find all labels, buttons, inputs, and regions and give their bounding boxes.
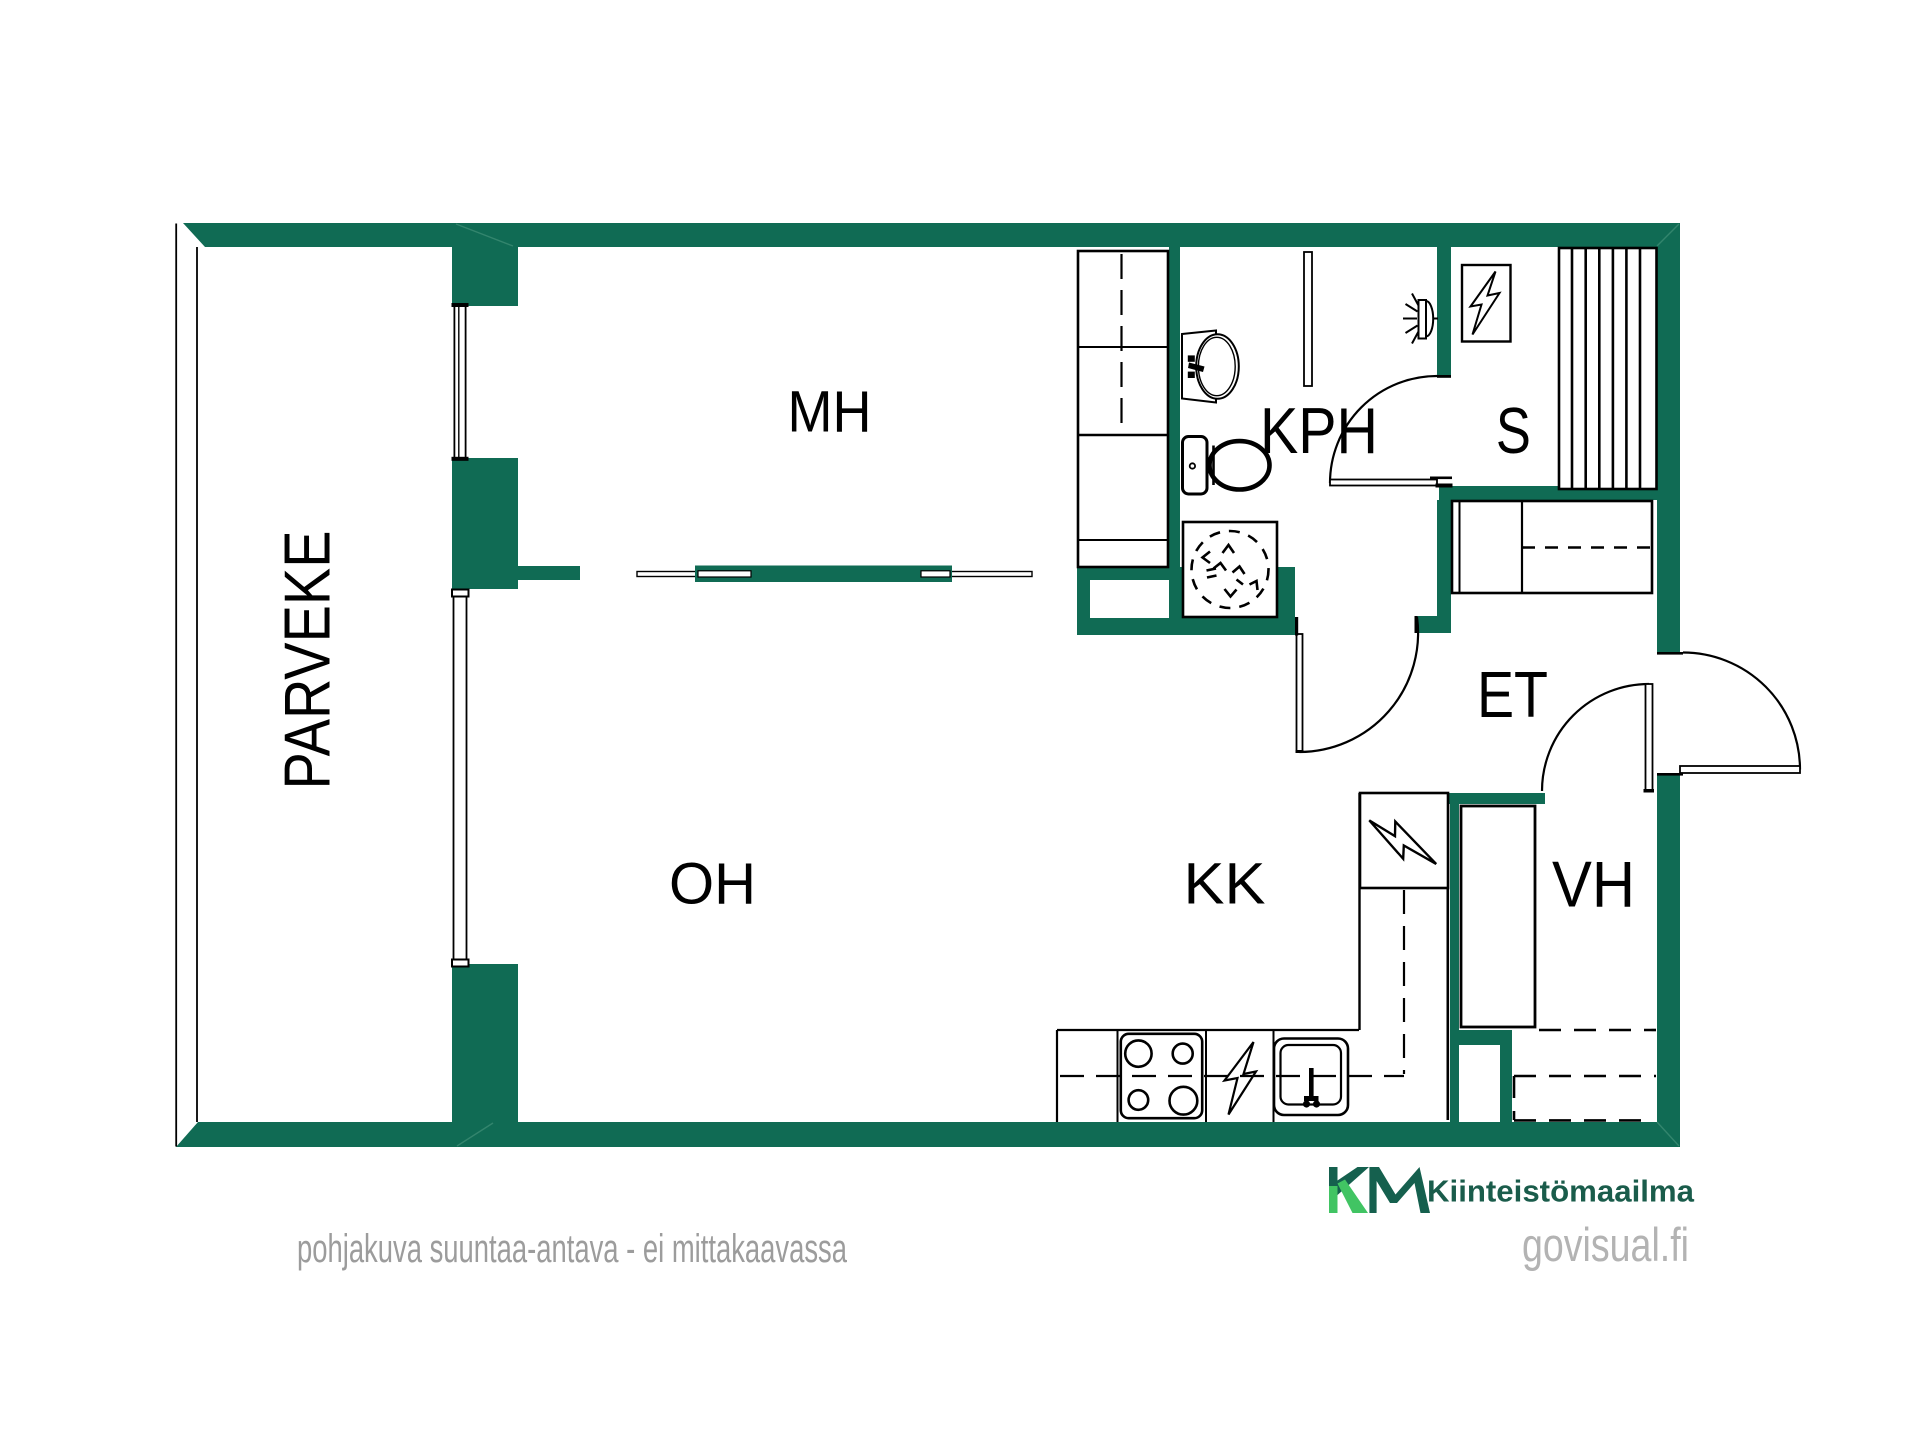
svg-text:PARVEKE: PARVEKE bbox=[271, 531, 344, 790]
svg-text:ET: ET bbox=[1477, 658, 1548, 731]
svg-text:VH: VH bbox=[1552, 848, 1635, 921]
svg-text:MH: MH bbox=[788, 380, 872, 445]
svg-text:Kiinteistömaailma: Kiinteistömaailma bbox=[1427, 1174, 1695, 1209]
svg-text:pohjakuva suuntaa-antava - ei: pohjakuva suuntaa-antava - ei mittakaava… bbox=[297, 1227, 848, 1271]
svg-text:OH: OH bbox=[669, 852, 756, 917]
svg-text:KK: KK bbox=[1184, 852, 1266, 917]
svg-text:govisual.fi: govisual.fi bbox=[1522, 1218, 1689, 1271]
svg-text:S: S bbox=[1496, 394, 1531, 467]
svg-text:KPH: KPH bbox=[1260, 394, 1378, 467]
